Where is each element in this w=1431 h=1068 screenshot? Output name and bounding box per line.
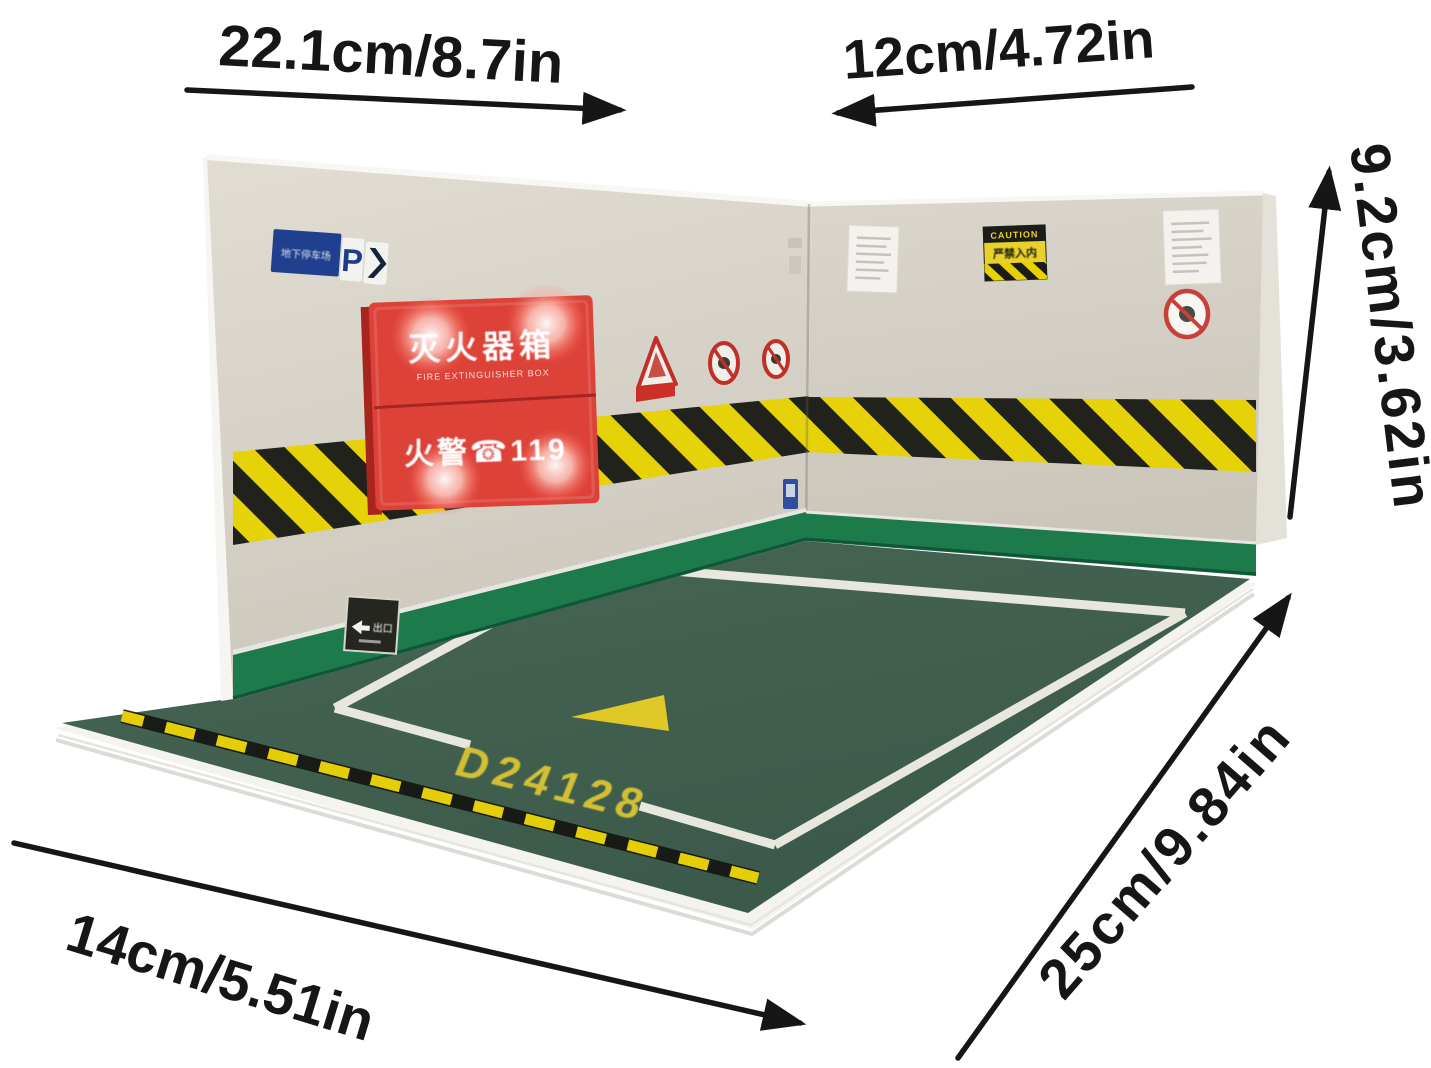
dim-top-width-label: 22.1cm/8.7in — [217, 13, 565, 96]
dim-wall-height-label: 9.2cm/3.62in — [1338, 140, 1431, 514]
product-image: D24128 地下停车场 P — [0, 0, 1431, 1068]
notice-paper-left — [847, 225, 899, 293]
caution-sign: CAUTION 严禁入内 — [983, 225, 1047, 281]
parking-sign-p: P — [340, 242, 364, 279]
faint-wall-sticker — [788, 238, 802, 274]
fire-extinguisher-lightbox: 灭火器箱 FIRE EXTINGUISHER BOX 火警☎119 — [360, 282, 600, 519]
notice-paper-right — [1163, 209, 1222, 285]
dim-wall-height: 9.2cm/3.62in — [1290, 140, 1431, 517]
caution-header: CAUTION — [990, 229, 1038, 241]
dim-top-width: 22.1cm/8.7in — [187, 13, 620, 110]
corner-blue-sticker — [783, 479, 798, 509]
dim-back-width: 12cm/4.72in — [838, 7, 1192, 113]
dim-front-width-label: 14cm/5.51in — [60, 900, 382, 1053]
no-smoking-sign — [1166, 291, 1208, 337]
exit-sign: 出口 — [344, 596, 400, 653]
dim-depth-label: 25cm/9.84in — [1026, 704, 1304, 1010]
firebox-title: 灭火器箱 — [408, 326, 557, 367]
diorama-scene: D24128 地下停车场 P — [0, 0, 1431, 1068]
dim-back-width-label: 12cm/4.72in — [841, 7, 1156, 91]
firebox-alarm-text: 火警☎119 — [403, 432, 568, 472]
